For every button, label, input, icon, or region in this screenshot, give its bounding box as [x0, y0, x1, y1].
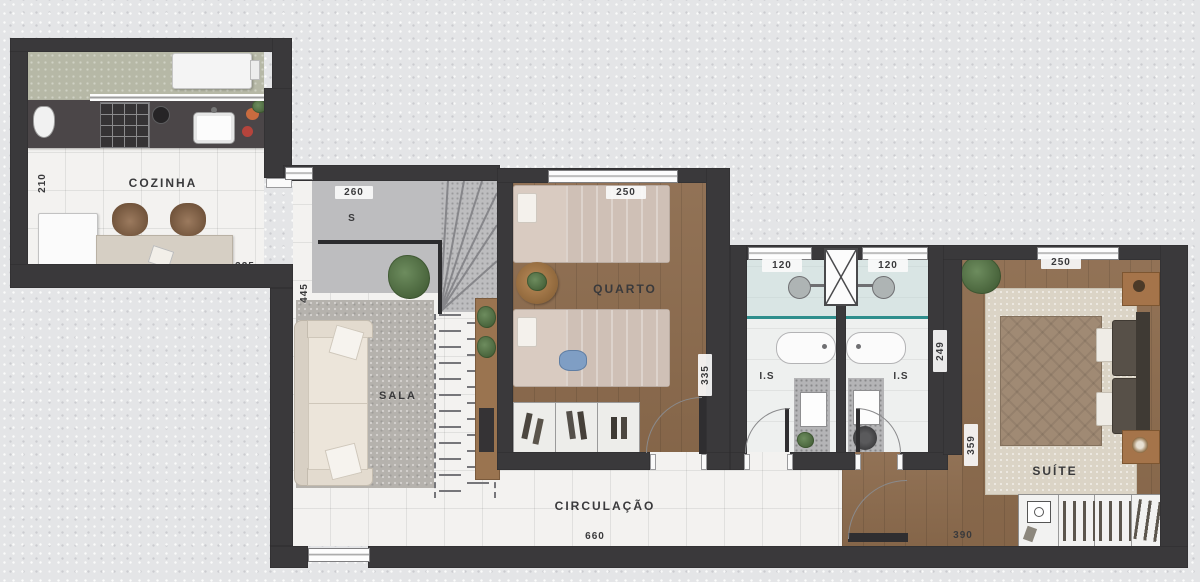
plant-icon: [527, 272, 547, 291]
shoes-icon: [521, 413, 532, 440]
duct-shaft-icon: [824, 248, 858, 306]
fridge-icon: [38, 213, 98, 268]
wall: [272, 38, 292, 90]
wall: [497, 168, 513, 470]
bedroom-window: [548, 170, 678, 183]
wall: [270, 288, 293, 546]
room-label-living: SALA: [370, 389, 426, 403]
stool-icon: [170, 203, 206, 236]
stair-handrail: [438, 240, 442, 314]
sofa: [294, 320, 374, 484]
wall: [704, 452, 730, 470]
plant-icon: [961, 256, 1001, 294]
plant-icon: [477, 336, 496, 358]
blanket: [566, 310, 669, 386]
dim-bedroom-width: 250: [606, 186, 646, 199]
glass-partition-left: [747, 316, 836, 319]
door-frame-cap: [855, 454, 861, 470]
dim-hall-length: 660: [576, 530, 614, 543]
wall: [497, 452, 650, 470]
wardrobe: [1018, 494, 1168, 550]
bathtub-icon: [776, 332, 836, 364]
wall: [10, 38, 28, 288]
door-frame-cap: [650, 454, 656, 470]
stair-direction-label: S: [344, 212, 360, 225]
plant-icon: [797, 432, 814, 448]
shoes-icon: [611, 417, 617, 439]
room-label-kitchen: COZINHA: [118, 176, 208, 190]
washer-tap-icon: [250, 60, 260, 80]
tv-icon: [479, 408, 494, 452]
stove-icon: [100, 102, 150, 148]
shower-icon: [872, 276, 895, 299]
faucet-icon: [211, 107, 217, 113]
dim-suite-depth: 359: [964, 424, 978, 466]
wall: [283, 165, 500, 181]
toy-icon: [559, 350, 587, 371]
glass-partition-right: [846, 316, 928, 319]
decor-icon: [1132, 437, 1148, 453]
dim-suite-width: 250: [1041, 256, 1081, 269]
single-bed: [513, 309, 670, 387]
wall: [790, 452, 855, 470]
vanity-sink-icon: [800, 392, 827, 427]
decor-icon: [1133, 280, 1145, 292]
room-label-hall: CIRCULAÇÃO: [545, 499, 665, 513]
wall: [1160, 245, 1188, 568]
room-label-bath-left: I.S: [750, 370, 784, 383]
staircase-winder-treads: [440, 181, 497, 312]
drain-icon: [856, 344, 861, 349]
single-bed: [513, 185, 670, 263]
dim-bedroom-depth: 335: [698, 354, 712, 396]
quilt: [1000, 316, 1102, 446]
dim-kitchen-depth: 210: [35, 164, 49, 202]
wall: [730, 245, 747, 470]
safe-dial-icon: [1034, 507, 1044, 517]
shoes-icon: [566, 411, 576, 440]
dim-bath-depth: 249: [933, 330, 947, 372]
kitchen-window: [90, 94, 266, 101]
wall: [368, 546, 1188, 568]
void-projection-treads: [439, 314, 461, 498]
floor-plan: COZINHA SALA QUARTO I.S I.S SUÍTE CIRCUL…: [0, 0, 1200, 582]
dim-living-depth: 445: [297, 274, 311, 312]
hanging-clothes-icon: [1099, 501, 1131, 541]
window: [285, 167, 313, 180]
decor-icon: [242, 126, 253, 137]
hanging-clothes-icon: [1063, 501, 1095, 541]
duct-shaft-braces: [826, 250, 856, 304]
wall: [900, 452, 948, 470]
room-label-bedroom: QUARTO: [580, 282, 670, 296]
wardrobe-cell: [1019, 495, 1059, 549]
door-frame-cap: [897, 454, 903, 470]
wardrobe-cell: [1095, 495, 1131, 549]
drain-icon: [822, 344, 827, 349]
folded-clothes-icon: [1023, 526, 1037, 543]
door-frame-cap: [744, 454, 750, 470]
dim-stair-width: 260: [335, 186, 373, 199]
pan-icon: [152, 106, 170, 124]
wall: [10, 38, 292, 52]
kitchen-sink-icon: [193, 112, 235, 144]
dim-bath-right-width: 120: [868, 259, 908, 272]
wardrobe-cell: [556, 403, 598, 453]
water-jug-icon: [33, 106, 55, 138]
shower-icon: [788, 276, 811, 299]
wall: [706, 168, 730, 470]
pillow: [517, 193, 537, 223]
door-frame-cap: [701, 454, 707, 470]
pillow: [517, 317, 537, 347]
room-label-suite: SUÍTE: [1020, 464, 1090, 478]
washer-icon: [172, 53, 252, 89]
dim-kitchen-width: 325: [225, 260, 265, 273]
bathtub-icon: [846, 332, 906, 364]
double-bed: [1000, 314, 1150, 446]
stair-handrail: [318, 240, 442, 244]
wall: [270, 546, 308, 568]
plant-icon: [388, 255, 430, 299]
wardrobe-cell: [598, 403, 639, 453]
wardrobe-cell: [514, 403, 556, 453]
room-label-bath-right: I.S: [884, 370, 918, 383]
plant-icon: [477, 306, 496, 328]
door-frame-cap: [787, 454, 793, 470]
dim-bath-left-width: 120: [762, 259, 802, 272]
dim-suite-length: 390: [944, 529, 982, 542]
stool-icon: [112, 203, 148, 236]
wardrobe-cell: [1059, 495, 1095, 549]
shoe-wardrobe: [513, 402, 640, 454]
living-window: [308, 548, 370, 562]
